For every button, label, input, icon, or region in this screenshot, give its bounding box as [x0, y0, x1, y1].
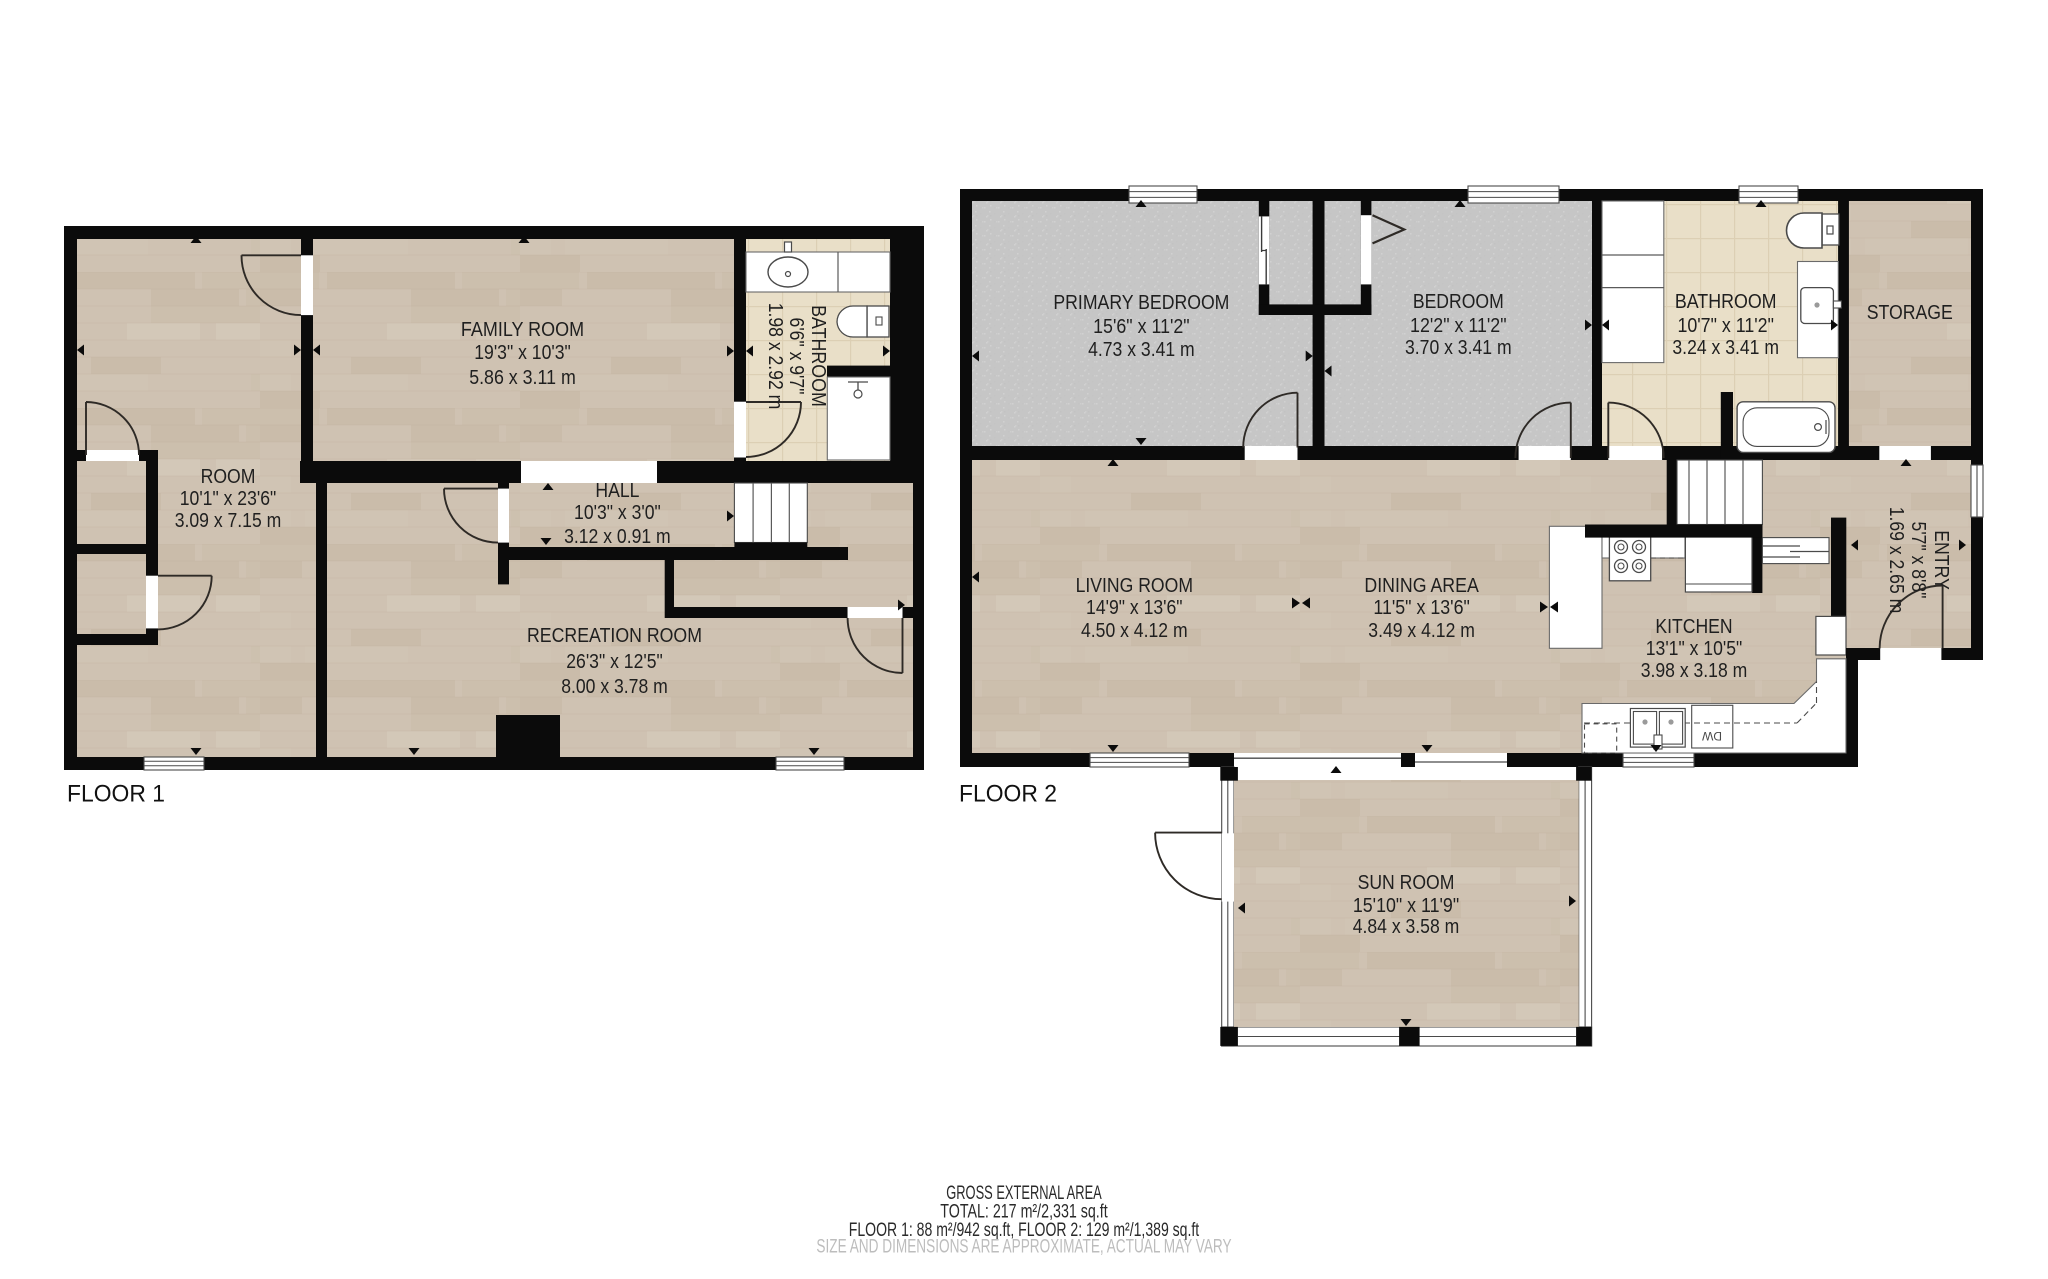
svg-text:10'7" x 11'2": 10'7" x 11'2"	[1677, 315, 1774, 337]
svg-text:DW: DW	[1701, 729, 1722, 743]
svg-text:LIVING ROOM: LIVING ROOM	[1076, 575, 1193, 597]
svg-text:3.98 x 3.18 m: 3.98 x 3.18 m	[1641, 660, 1748, 682]
svg-text:SUN ROOM: SUN ROOM	[1358, 872, 1455, 894]
svg-text:DINING AREA: DINING AREA	[1364, 575, 1479, 597]
svg-text:8.00 x 3.78 m: 8.00 x 3.78 m	[561, 676, 668, 698]
svg-text:BATHROOM: BATHROOM	[1675, 291, 1777, 313]
svg-text:14'9" x 13'6": 14'9" x 13'6"	[1086, 597, 1183, 619]
svg-text:5.86 x 3.11 m: 5.86 x 3.11 m	[469, 367, 576, 389]
svg-text:19'3" x 10'3": 19'3" x 10'3"	[474, 342, 571, 364]
svg-text:STORAGE: STORAGE	[1867, 302, 1953, 324]
svg-text:4.84 x 3.58 m: 4.84 x 3.58 m	[1353, 916, 1460, 938]
svg-text:1.69 x 2.65 m: 1.69 x 2.65 m	[1885, 507, 1907, 614]
svg-text:3.12 x 0.91 m: 3.12 x 0.91 m	[564, 526, 671, 548]
svg-text:1.98 x 2.92 m: 1.98 x 2.92 m	[764, 303, 786, 410]
svg-text:HALL: HALL	[595, 480, 639, 502]
svg-text:12'2" x 11'2": 12'2" x 11'2"	[1410, 315, 1507, 337]
svg-text:FLOOR 1: FLOOR 1	[67, 781, 165, 808]
svg-text:SIZE AND DIMENSIONS ARE APPROX: SIZE AND DIMENSIONS ARE APPROXIMATE, ACT…	[816, 1237, 1231, 1258]
svg-text:10'1" x 23'6": 10'1" x 23'6"	[180, 488, 277, 510]
svg-text:15'10" x 11'9": 15'10" x 11'9"	[1353, 895, 1459, 917]
svg-text:BATHROOM: BATHROOM	[807, 305, 829, 407]
svg-text:FAMILY ROOM: FAMILY ROOM	[461, 319, 584, 341]
svg-text:3.09 x 7.15 m: 3.09 x 7.15 m	[175, 510, 282, 532]
svg-text:PRIMARY BEDROOM: PRIMARY BEDROOM	[1053, 292, 1229, 314]
svg-text:RECREATION ROOM: RECREATION ROOM	[527, 625, 702, 647]
svg-text:3.49 x 4.12 m: 3.49 x 4.12 m	[1368, 620, 1475, 642]
svg-text:6'6" x 9'7": 6'6" x 9'7"	[785, 318, 807, 395]
svg-text:26'3" x 12'5": 26'3" x 12'5"	[566, 651, 663, 673]
svg-text:15'6" x 11'2": 15'6" x 11'2"	[1093, 316, 1190, 338]
svg-text:11'5" x 13'6": 11'5" x 13'6"	[1373, 597, 1470, 619]
svg-text:FLOOR 2: FLOOR 2	[959, 781, 1057, 808]
svg-text:BEDROOM: BEDROOM	[1413, 291, 1504, 313]
svg-text:3.24 x 3.41 m: 3.24 x 3.41 m	[1672, 337, 1779, 359]
svg-text:5'7" x 8'8": 5'7" x 8'8"	[1907, 522, 1929, 599]
svg-text:4.50 x 4.12 m: 4.50 x 4.12 m	[1081, 620, 1188, 642]
svg-text:3.70 x 3.41 m: 3.70 x 3.41 m	[1405, 337, 1512, 359]
svg-text:ROOM: ROOM	[201, 466, 256, 488]
svg-text:10'3" x 3'0": 10'3" x 3'0"	[574, 502, 661, 524]
svg-text:4.73 x 3.41 m: 4.73 x 3.41 m	[1088, 339, 1195, 361]
svg-text:KITCHEN: KITCHEN	[1655, 616, 1732, 638]
svg-text:13'1" x 10'5": 13'1" x 10'5"	[1646, 638, 1743, 660]
svg-text:ENTRY: ENTRY	[1930, 530, 1952, 590]
